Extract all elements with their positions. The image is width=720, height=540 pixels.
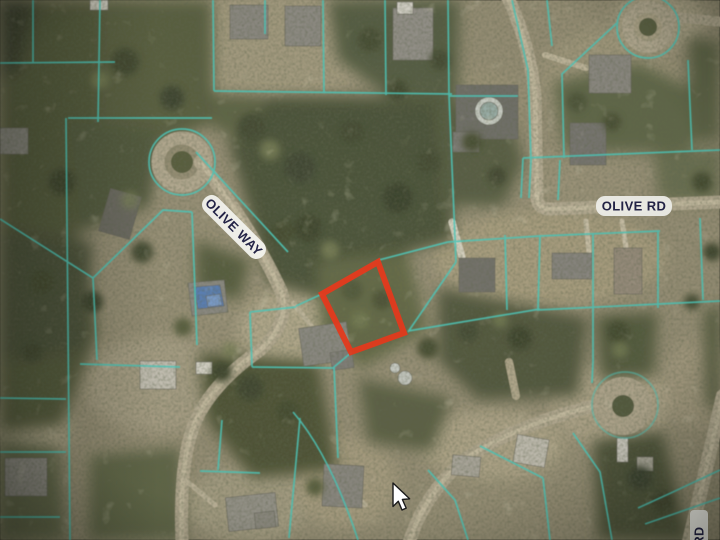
aerial-map-view[interactable]: OLIVE WAY OLIVE RD RD <box>0 0 720 540</box>
aerial-photo[interactable]: OLIVE WAY OLIVE RD RD <box>0 0 720 540</box>
edge-shadow <box>0 0 720 540</box>
